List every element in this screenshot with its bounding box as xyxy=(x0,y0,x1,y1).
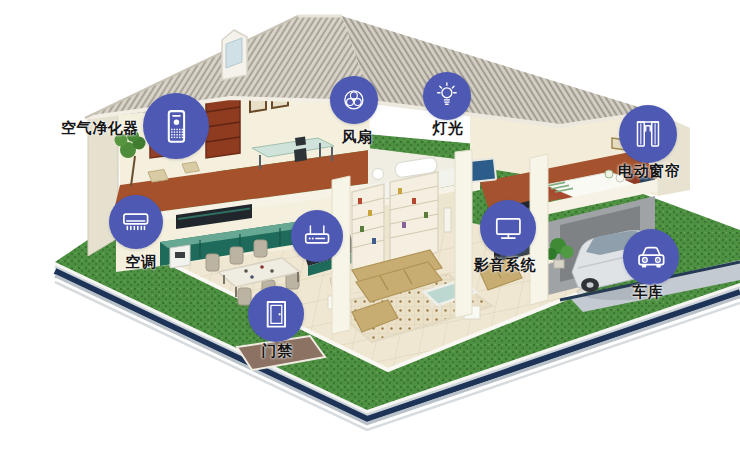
air-conditioner-icon[interactable] xyxy=(109,195,163,249)
curtain-icon[interactable] xyxy=(619,105,677,163)
device-label: 车库 xyxy=(633,283,664,302)
device-label: 空调 xyxy=(126,253,157,272)
door-icon[interactable] xyxy=(248,286,304,342)
device-label: 影音系统 xyxy=(474,256,536,275)
device-label: 风扇 xyxy=(342,128,373,147)
car-icon[interactable] xyxy=(623,229,679,285)
device-label: 灯光 xyxy=(433,119,464,138)
smart-home-diagram: 空气净化器 风扇 灯光 xyxy=(0,0,740,453)
fan-icon[interactable] xyxy=(330,76,378,124)
device-label: 门禁 xyxy=(262,342,293,361)
router-icon[interactable] xyxy=(291,210,343,262)
air-purifier-icon[interactable] xyxy=(143,93,209,159)
device-label: 空气净化器 xyxy=(61,119,139,138)
tv-icon[interactable] xyxy=(480,200,536,256)
device-label: 电动窗帘 xyxy=(618,162,680,181)
light-bulb-icon[interactable] xyxy=(423,72,471,120)
